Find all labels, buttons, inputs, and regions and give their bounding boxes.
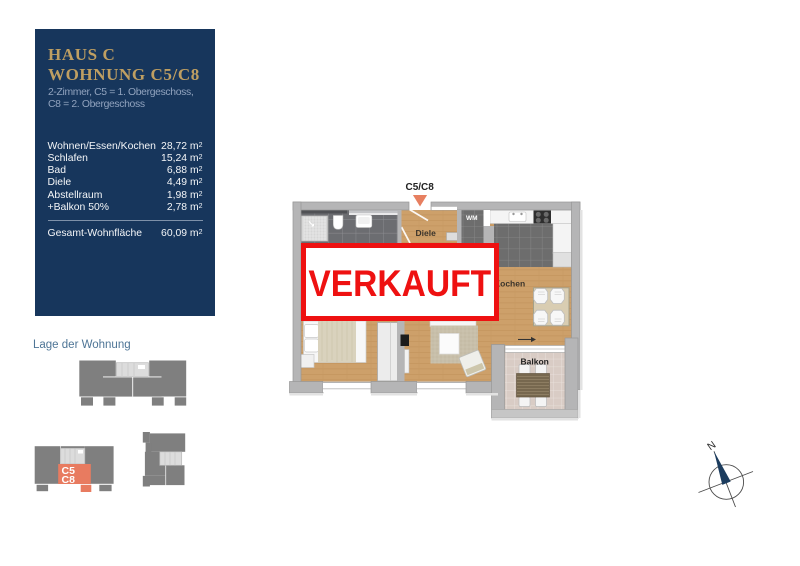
svg-text:Diele: Diele [416,228,437,238]
svg-text:N: N [705,439,718,453]
svg-text:C5/C8: C5/C8 [406,182,435,193]
svg-text:WM: WM [466,215,478,222]
svg-text:Balkon: Balkon [521,357,549,367]
